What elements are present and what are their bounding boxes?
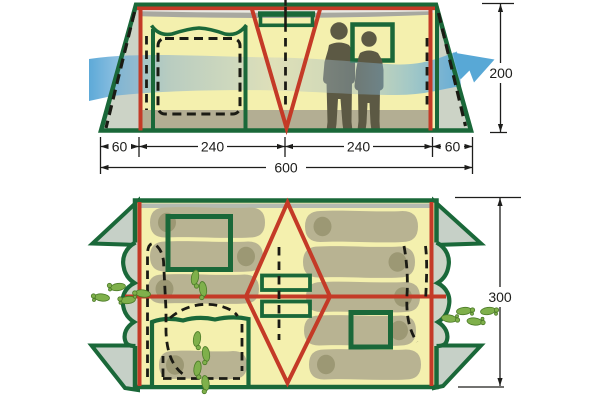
svg-text:60: 60 xyxy=(445,139,461,155)
svg-text:240: 240 xyxy=(201,139,225,155)
svg-text:300: 300 xyxy=(488,289,512,305)
svg-text:240: 240 xyxy=(347,139,371,155)
svg-text:200: 200 xyxy=(489,65,513,81)
svg-text:600: 600 xyxy=(274,160,298,176)
svg-text:60: 60 xyxy=(112,139,128,155)
